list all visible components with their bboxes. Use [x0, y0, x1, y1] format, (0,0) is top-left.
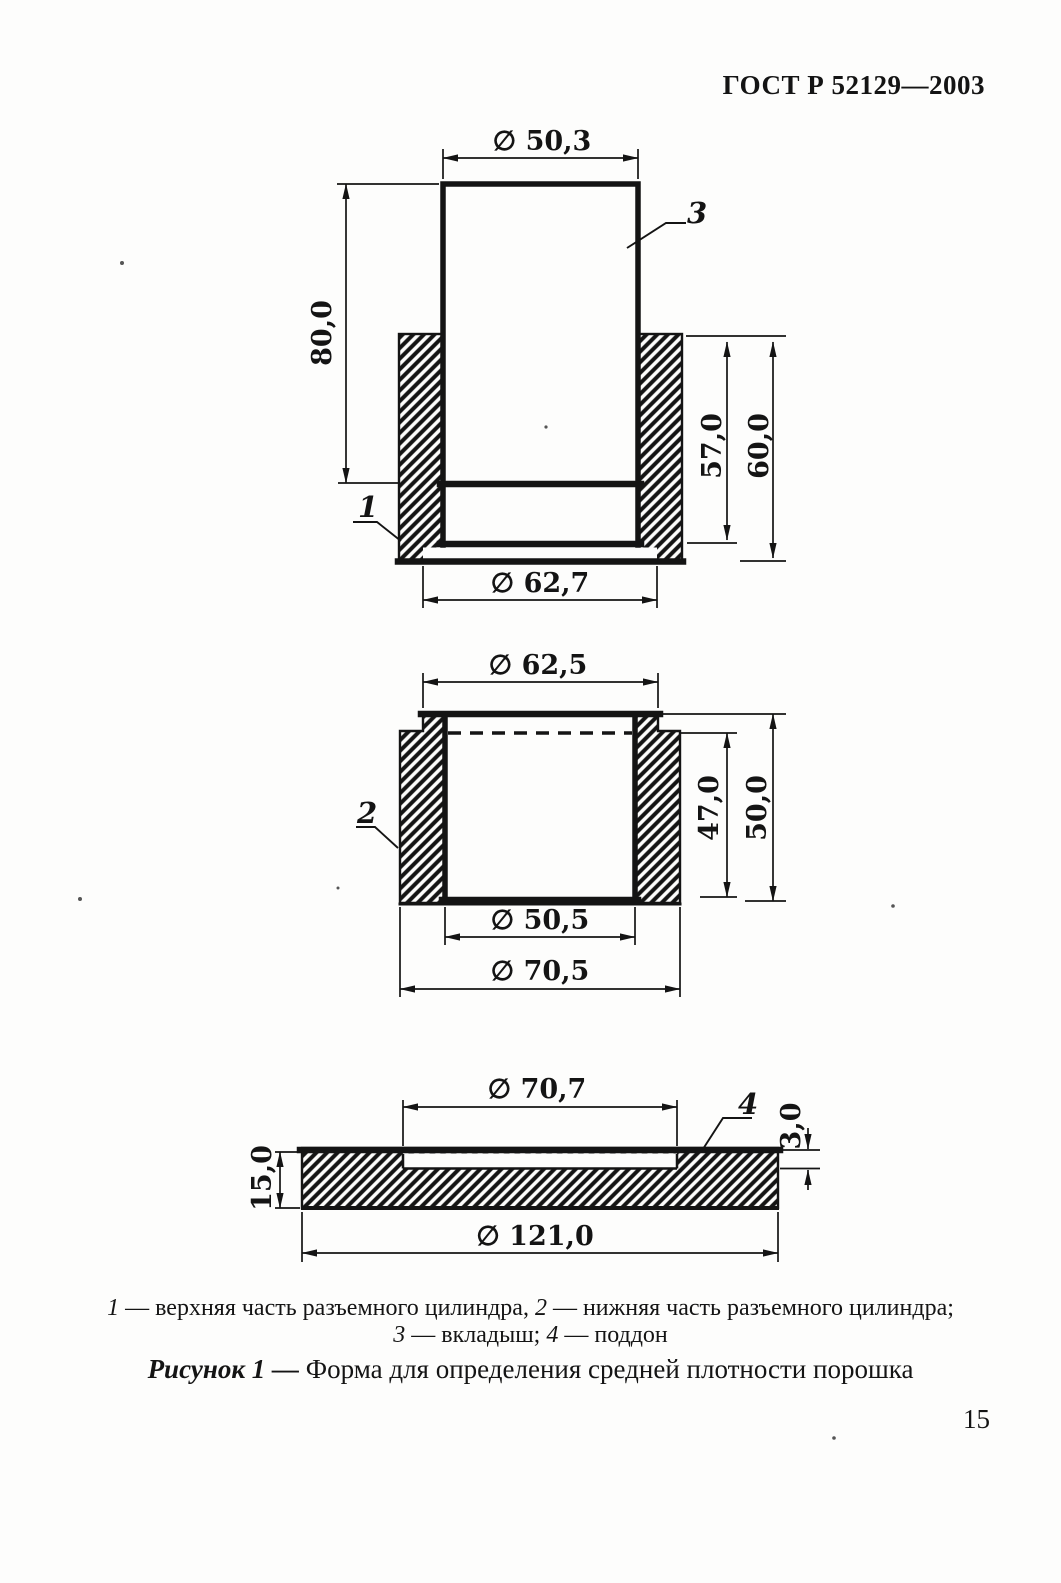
callout-part-1: 1 — [353, 490, 401, 541]
dim-label-d70-7: ∅ 70,7 — [488, 1074, 587, 1105]
figure-title: Форма для определения средней плотности … — [299, 1354, 913, 1384]
legend-item4-number: 4 — [546, 1322, 558, 1348]
legend-line-2: 3 — вкладыш; 4 — поддон — [0, 1322, 1061, 1349]
dim-label-h50: 50,0 — [742, 775, 773, 841]
view-lower-cylinder: ∅ 62,5 47,0 50,0 ∅ 50,5 — [356, 650, 786, 997]
legend-item2-text: — нижняя часть разъемного цилиндра; — [547, 1295, 954, 1321]
dim-label-h60: 60,0 — [744, 413, 775, 479]
part-label-4: 4 — [738, 1087, 758, 1121]
dim-mid-d50-5: ∅ 50,5 — [445, 905, 635, 945]
view-pallet: ∅ 70,7 3,0 15,0 ∅ 12 — [247, 1074, 820, 1262]
legend-item3-number: 3 — [393, 1322, 405, 1348]
dim-mid-d62-5: ∅ 62,5 — [423, 650, 658, 708]
dim-label-d50-3: ∅ 50,3 — [493, 126, 592, 157]
dim-bot-d121: ∅ 121,0 — [302, 1212, 778, 1262]
dim-top-h57-h60: 57,0 60,0 — [686, 336, 786, 561]
dim-label-d121: ∅ 121,0 — [476, 1221, 593, 1252]
pallet-recess — [403, 1154, 677, 1169]
view-upper-cylinder: ∅ 50,3 80,0 57,0 60,0 — [307, 126, 786, 608]
legend-item4-text: — поддон — [558, 1322, 667, 1348]
figure-label: Рисунок 1 — — [148, 1354, 299, 1384]
legend-item1-number: 1 — [107, 1295, 119, 1321]
legend-item3-text: — вкладыш; — [405, 1322, 546, 1348]
dim-label-d62-7: ∅ 62,7 — [491, 568, 590, 599]
part-label-3: 3 — [687, 196, 707, 230]
dim-label-h3: 3,0 — [776, 1103, 807, 1150]
page-number: 15 — [963, 1404, 990, 1435]
legend-item1-text: — верхняя часть разъемного цилиндра, — [119, 1295, 535, 1321]
dim-bot-h3: 3,0 — [776, 1103, 820, 1190]
figure-caption: Рисунок 1 — Форма для определения средне… — [0, 1354, 1061, 1384]
dim-top-d50-3: ∅ 50,3 — [443, 126, 638, 179]
dim-bot-d70-7: ∅ 70,7 — [403, 1074, 677, 1146]
upper-cylinder-right-wall — [638, 334, 682, 561]
dim-label-h15: 15,0 — [247, 1145, 278, 1211]
document-page: ГОСТ Р 52129—2003 — [0, 0, 1061, 1583]
callout-part-4: 4 — [703, 1087, 758, 1149]
callout-part-2: 2 — [356, 796, 398, 848]
part-label-2: 2 — [356, 796, 377, 830]
dim-label-h47: 47,0 — [694, 775, 725, 841]
lower-cylinder-right-wall — [635, 713, 680, 903]
lower-cylinder-left-wall — [400, 713, 445, 903]
dim-label-d62-5: ∅ 62,5 — [489, 650, 588, 681]
legend-item2-number: 2 — [535, 1295, 547, 1321]
legend-line-1: 1 — верхняя часть разъемного цилиндра, 2… — [0, 1295, 1061, 1322]
dim-label-d50-5: ∅ 50,5 — [491, 905, 590, 936]
dim-top-d62-7: ∅ 62,7 — [423, 566, 657, 608]
dim-bot-h15: 15,0 — [247, 1145, 300, 1211]
upper-cylinder-left-wall — [399, 334, 443, 561]
part-label-1: 1 — [358, 490, 378, 524]
dim-label-h57: 57,0 — [697, 413, 728, 479]
insert-outline — [443, 184, 638, 545]
dim-label-d70-5: ∅ 70,5 — [491, 956, 590, 987]
dim-label-h80: 80,0 — [307, 300, 338, 366]
upper-cylinder-bottom-recess — [423, 548, 657, 559]
